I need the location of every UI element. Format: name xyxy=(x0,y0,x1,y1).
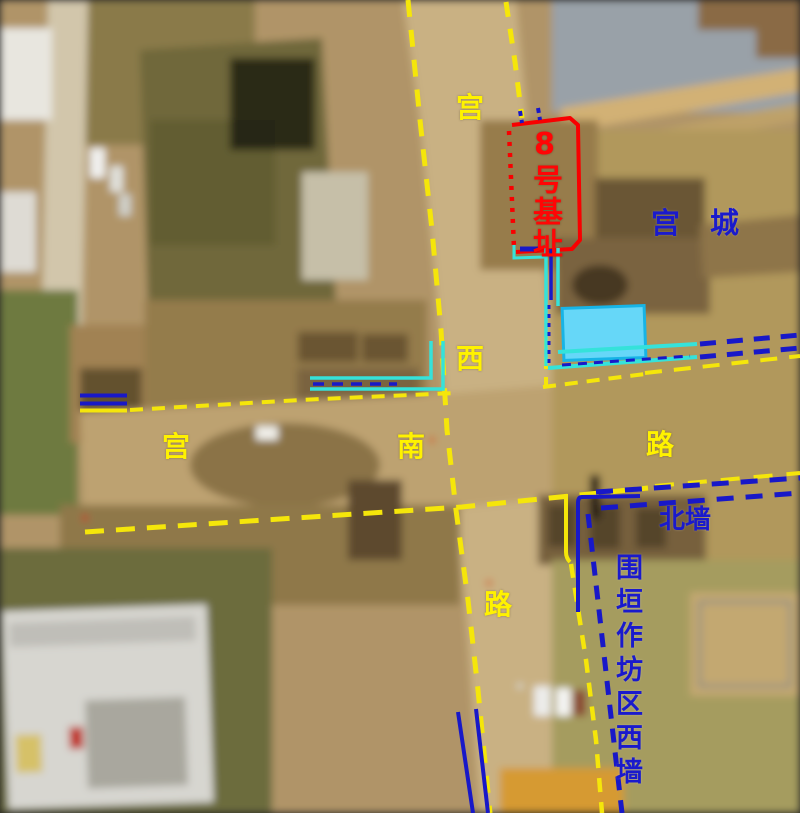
terrain-white-complex xyxy=(2,604,214,809)
label-north-wall: 北墙 xyxy=(659,507,711,533)
label-road-horizontal-lu: 路 xyxy=(646,431,674,459)
terrain-right-lower-building xyxy=(690,592,800,696)
label-palace-city: 宫城 xyxy=(651,209,769,238)
terrain-van-3 xyxy=(119,194,131,216)
terrain-dot-1 xyxy=(429,437,435,443)
terrain-van-1 xyxy=(90,148,105,178)
terrain-dot-2 xyxy=(486,580,492,586)
terrain-dot-3 xyxy=(517,683,523,689)
terrain-truck-2 xyxy=(556,688,571,716)
terrain-pit-row-1 xyxy=(298,332,358,362)
terrain-truck-1 xyxy=(534,686,551,716)
terrain-pipe-stack xyxy=(302,172,368,280)
terrain-yellow-tarp xyxy=(15,734,42,773)
terrain-green-strip-left xyxy=(0,290,78,515)
label-road-horizontal-nan: 南 xyxy=(397,433,425,461)
terrain-white-building-1 xyxy=(0,28,52,120)
label-road-horizontal-gong: 宫 xyxy=(162,433,190,461)
terrain-red-door xyxy=(69,727,84,749)
terrain-tree-shadow xyxy=(572,265,628,305)
label-workshop-west-wall: 围垣作坊区西墙 xyxy=(613,553,640,791)
terrain-dark-patch-2 xyxy=(230,58,315,150)
terrain xyxy=(0,0,800,813)
label-site-no8: 8号基址 xyxy=(529,127,559,260)
label-road-vertical-gong: 宫 xyxy=(456,94,484,122)
terrain-van-2 xyxy=(110,166,123,192)
terrain-white-van-center xyxy=(256,426,278,440)
label-road-vertical-xi: 西 xyxy=(456,345,484,373)
terrain-pit-row-2 xyxy=(362,334,408,362)
terrain-pit-lower xyxy=(348,480,402,560)
terrain-dot-4 xyxy=(82,515,88,521)
map-graphics xyxy=(0,0,800,813)
terrain-white-building-2 xyxy=(0,192,36,272)
label-road-vertical-lu: 路 xyxy=(484,591,512,619)
terrain-white-complex-courtyard xyxy=(85,697,188,788)
terrain-south-pit-a xyxy=(548,505,576,547)
terrain-truck-3 xyxy=(573,690,586,716)
terrain-orange-building xyxy=(500,768,624,813)
aerial-map: 宫 西 路 宫 南 路 8号基址 宫城 北墙 围垣作坊区西墙 xyxy=(0,0,800,813)
